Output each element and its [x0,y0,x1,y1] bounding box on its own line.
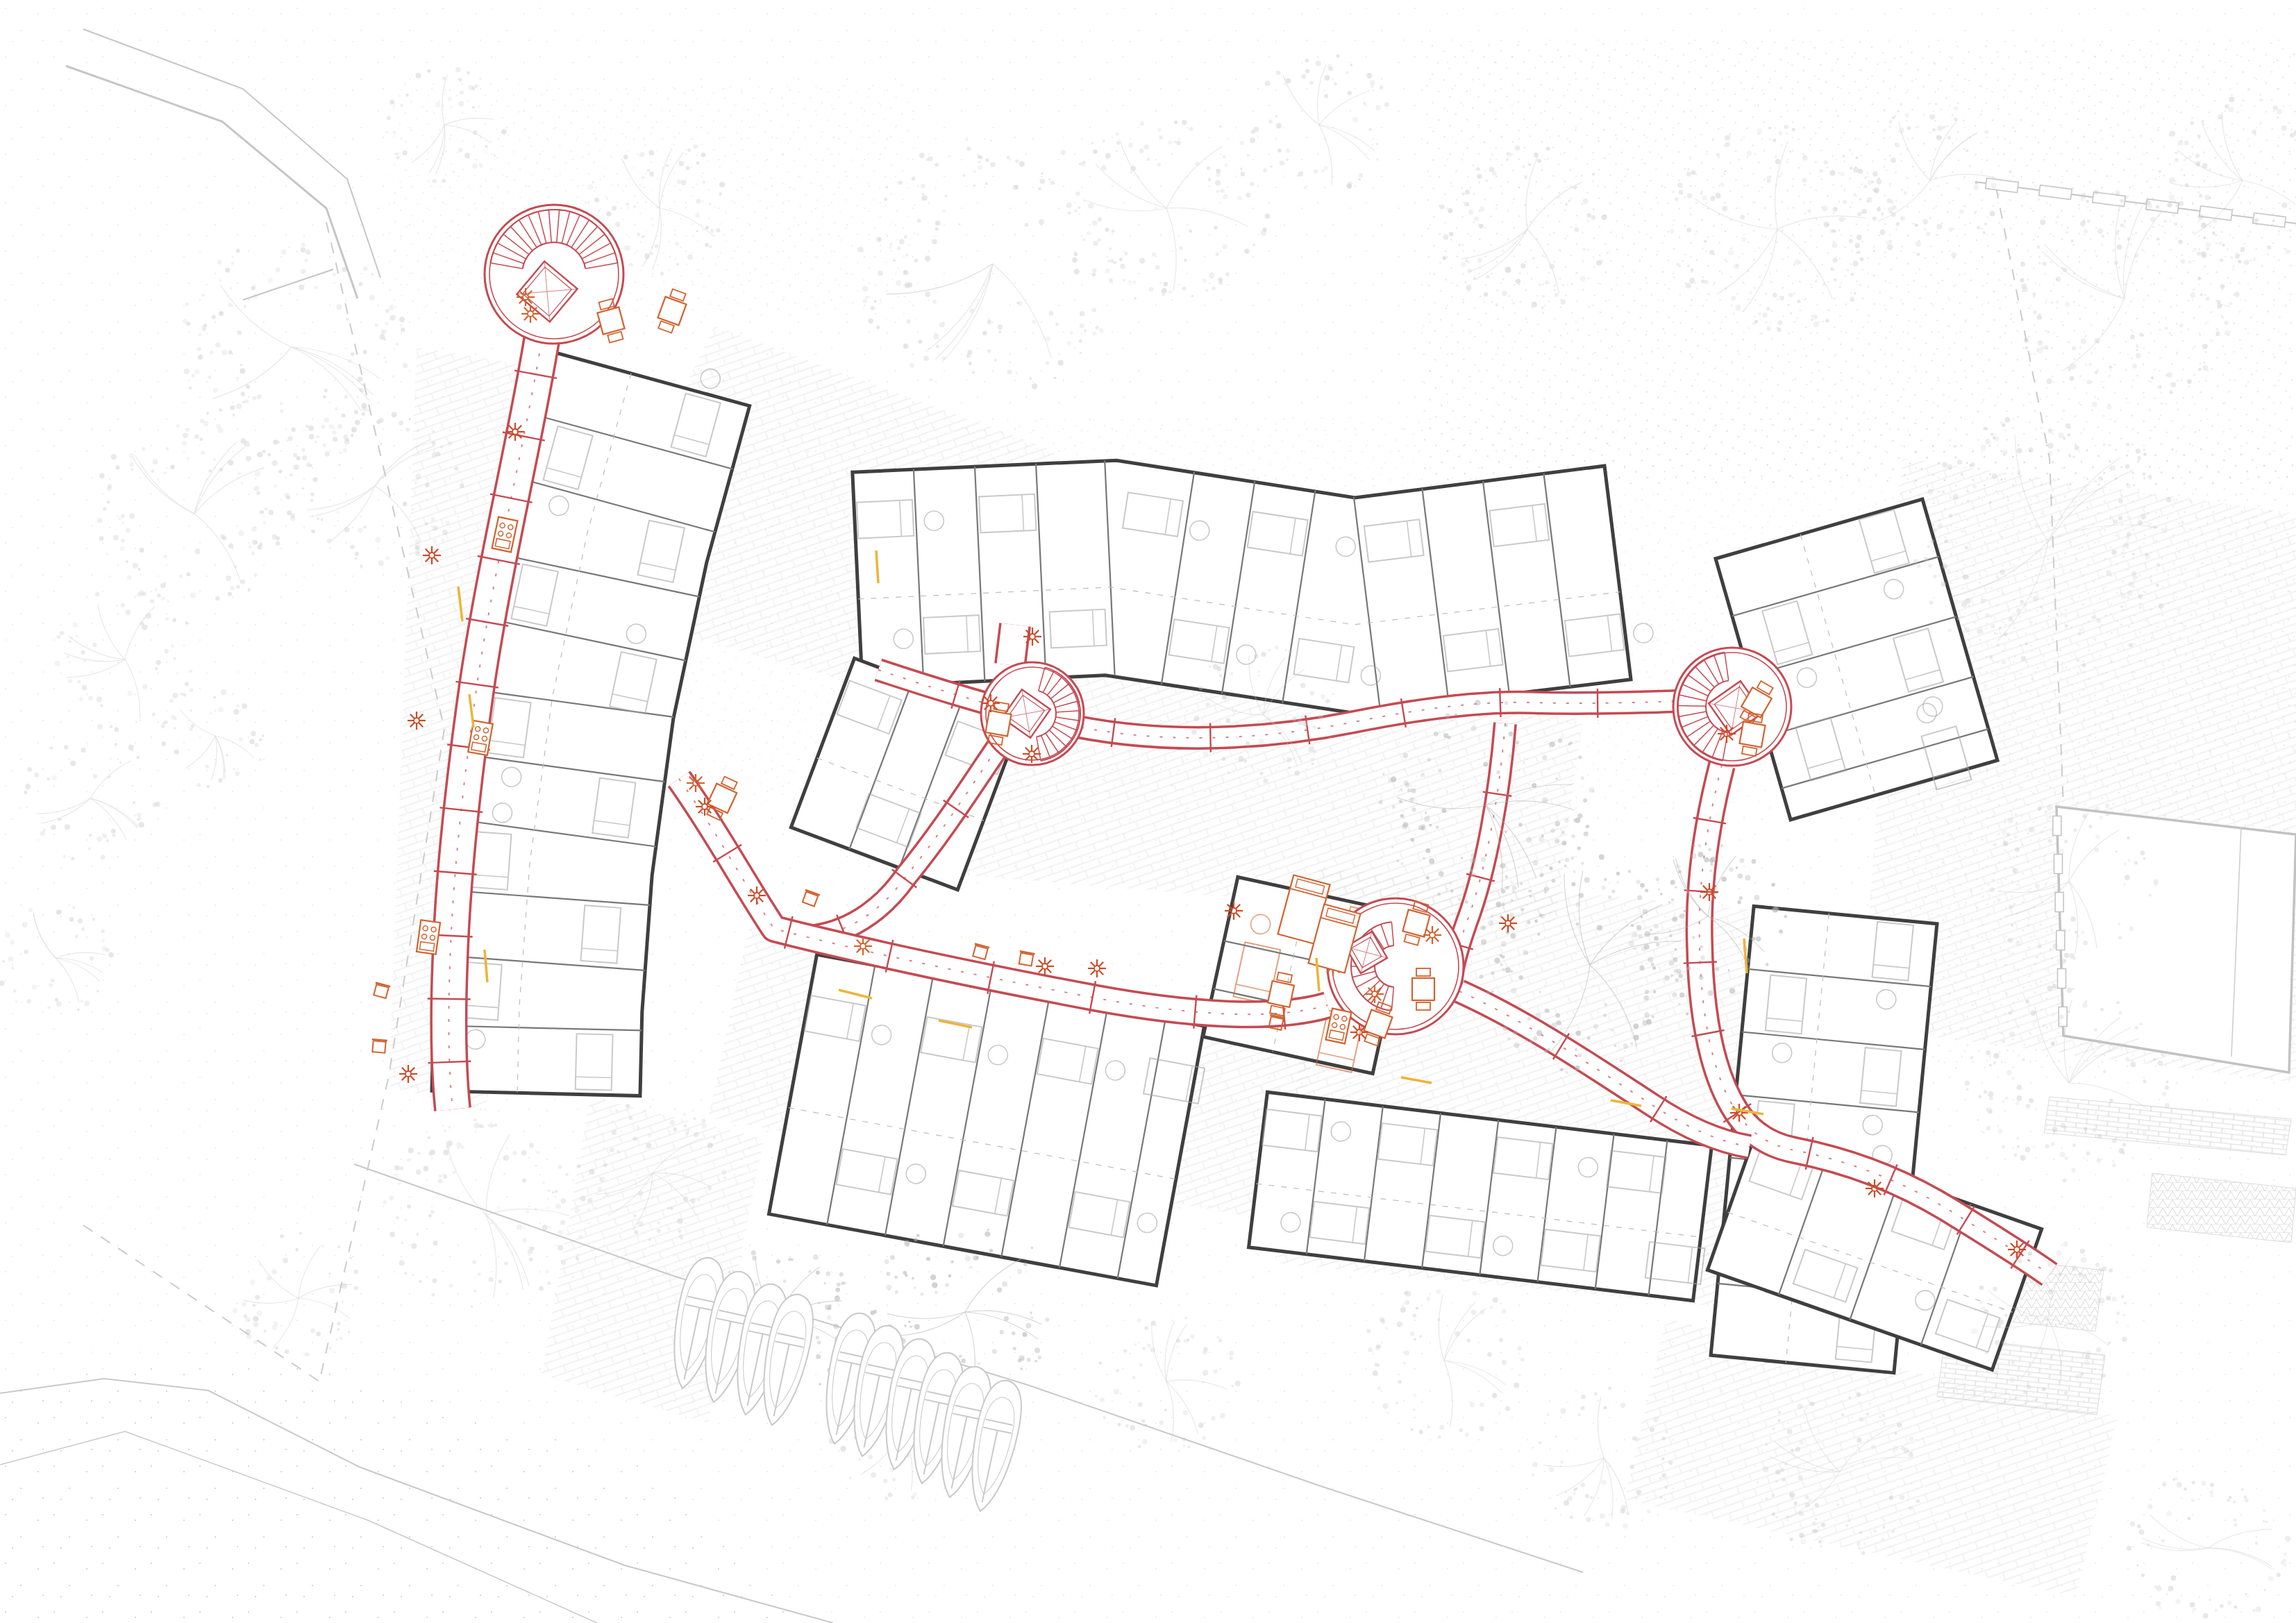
tree-leaf-dot [1473,1291,1477,1295]
tree-leaf-dot [1592,173,1595,176]
tree-leaf-dot [2073,828,2077,832]
tree-leaf-dot [385,361,387,363]
tree-leaf-dot [274,485,276,487]
tree-leaf-dot [1020,1368,1023,1370]
tree-leaf-dot [1668,1461,1673,1465]
tree-leaf-dot [1947,136,1951,140]
tree-leaf-dot [1184,1317,1187,1319]
tree-leaf-dot [1203,751,1209,757]
tree-leaf-dot [1749,292,1752,294]
tree-leaf-dot [423,1166,428,1171]
tree-leaf-dot [464,153,470,158]
building-central-slab [853,460,1654,713]
tree-leaf-dot [1550,828,1555,832]
tree-leaf-dot [2037,340,2043,346]
tree-leaf-dot [2212,231,2215,235]
tree-leaf-dot [2088,362,2092,366]
tree-leaf-dot [1899,128,1904,133]
tree-leaf-dot [2136,448,2140,453]
tree-leaf-dot [1123,1349,1127,1352]
tree-leaf-dot [1537,159,1541,163]
tree-leaf-dot [13,989,17,993]
tree-leaf-dot [1867,197,1872,203]
tree-leaf-dot [1571,834,1575,838]
tree-leaf-dot [1605,1522,1610,1527]
tree-leaf-dot [1734,263,1739,269]
tree-leaf-dot [210,351,213,354]
tree-leaf-dot [239,737,243,741]
tree-leaf-dot [2081,339,2086,344]
tree-leaf-dot [687,149,691,152]
tree-leaf-dot [2192,1481,2195,1484]
tree-leaf-dot [2274,106,2278,110]
tree-leaf-dot [677,179,682,184]
tree-leaf-dot [251,731,255,736]
tree-leaf-dot [1128,143,1133,148]
tree-leaf-dot [2020,262,2025,267]
tree-leaf-dot [1758,312,1761,316]
tree-leaf-dot [1366,1329,1371,1333]
tree-leaf-dot [332,430,336,435]
tree-leaf-dot [2063,928,2067,932]
tree-leaf-dot [2097,1300,2101,1304]
tree-leaf-dot [610,1147,614,1152]
tree-leaf-dot [1664,975,1670,981]
tree-leaf-dot [2238,260,2241,263]
tree-leaf-dot [114,743,117,746]
tree-leaf-dot [1532,257,1534,260]
tree-leaf-dot [1631,924,1634,927]
tree-leaf-dot [2056,276,2061,282]
tree-leaf-dot [135,721,138,724]
tree-leaf-dot [417,430,419,432]
tree-leaf-dot [276,537,280,541]
tree-leaf-dot [1400,814,1404,818]
tree-leaf-dot [2110,1099,2113,1102]
tree-leaf-dot [1528,890,1531,893]
tree-leaf-dot [110,725,113,728]
tree-leaf-dot [1620,1402,1625,1407]
tree-leaf-dot [2048,816,2052,819]
tree-leaf-dot [185,621,189,625]
tree-leaf-dot [1658,889,1660,891]
tree-leaf-dot [1000,1330,1004,1334]
tree-leaf-dot [1015,160,1019,163]
tree-leaf-dot [1254,654,1258,658]
tree-leaf-dot [1994,632,1997,635]
tree-leaf-dot [1544,1050,1548,1053]
tree-leaf-dot [1928,564,1932,568]
tree-leaf-dot [1660,893,1663,895]
tree-leaf-dot [1270,165,1273,168]
tree-leaf-dot [603,1163,607,1167]
tree-leaf-dot [1512,886,1517,891]
tree-leaf-dot [208,376,212,379]
tree-leaf-dot [598,210,601,212]
tree-leaf-dot [1084,330,1087,333]
tree-leaf-dot [473,131,477,135]
tree-leaf-dot [2259,99,2263,102]
tree-leaf-dot [190,670,192,673]
tree-leaf-dot [1821,1522,1825,1527]
tree-leaf-dot [2129,926,2134,930]
tree-leaf-dot [1993,1286,1997,1291]
tree-leaf-dot [904,235,907,239]
tree-leaf-dot [344,527,350,532]
tree-leaf-dot [2027,923,2030,927]
tree-leaf-dot [2285,249,2290,254]
tree-leaf-dot [966,353,971,358]
tree-leaf-dot [1489,167,1494,172]
tree-leaf-dot [1012,185,1017,190]
tree-leaf-dot [1184,259,1187,262]
tree-leaf-dot [1392,805,1396,809]
tree-leaf-dot [1720,183,1725,187]
tree-leaf-dot [474,1290,476,1293]
tree-leaf-dot [1098,1361,1102,1365]
tree-leaf-dot [587,1197,592,1202]
tree-leaf-dot [2206,296,2210,301]
neighbor-window [2055,893,2063,912]
tree-leaf-dot [1857,235,1862,240]
tree-leaf-dot [2095,807,2100,811]
tree-leaf-dot [172,693,178,698]
tree-leaf-dot [1775,1516,1778,1519]
tree-leaf-dot [2252,130,2256,134]
tree-leaf-dot [1465,1433,1469,1437]
tree-leaf-dot [1545,864,1548,867]
tree-leaf-dot [106,948,110,952]
tree-leaf-dot [1798,1511,1803,1515]
tree-leaf-dot [1652,1015,1654,1018]
tree-leaf-dot [1590,1496,1593,1499]
tree-leaf-dot [2067,988,2072,993]
tree-leaf-dot [396,343,399,346]
tree-leaf-dot [928,156,932,161]
tree-leaf-dot [2172,1478,2175,1481]
tree-leaf-dot [1457,897,1461,901]
tree-leaf-dot [2095,1111,2097,1113]
tree-leaf-dot [2070,364,2076,369]
tree-leaf-dot [2218,241,2222,244]
tree-leaf-dot [1725,170,1727,172]
tree-leaf-dot [1570,1515,1573,1519]
tree-leaf-dot [1991,878,1995,882]
tree-leaf-dot [2129,643,2133,647]
tree-leaf-dot [2056,958,2061,962]
tree-leaf-dot [2040,219,2045,225]
tree-leaf-dot [407,1158,410,1161]
tree-leaf-dot [1505,830,1507,833]
tree-leaf-dot [2017,1145,2020,1148]
tree-leaf-dot [246,385,250,389]
tree-leaf-dot [1294,771,1300,776]
tree-leaf-dot [125,609,131,615]
walkway-tick [428,998,471,999]
tree-leaf-dot [433,430,435,432]
tree-leaf-dot [267,453,271,457]
tree-leaf-dot [942,209,946,212]
tree-leaf-dot [1464,201,1469,206]
tree-leaf-dot [1904,191,1907,194]
tree-leaf-dot [2009,617,2013,621]
tree-leaf-dot [1585,1494,1589,1498]
tree-leaf-dot [1018,1359,1021,1362]
tree-leaf-dot [2020,278,2024,282]
tree-leaf-dot [305,250,310,255]
tree-leaf-dot [265,507,267,510]
tree-leaf-dot [1794,1502,1798,1505]
tree-leaf-dot [1400,1307,1406,1313]
tree-leaf-dot [101,929,105,933]
tree-leaf-dot [1871,180,1874,183]
tree-leaf-dot [2125,464,2129,469]
tree-leaf-dot [399,1260,405,1265]
tree-leaf-dot [1636,1490,1642,1495]
tree-leaf-dot [342,267,347,272]
tree-leaf-dot [157,594,160,597]
tree-leaf-dot [1455,714,1457,716]
tree-leaf-dot [1068,212,1071,215]
tree-leaf-dot [912,177,915,180]
tree-leaf-dot [1934,103,1937,106]
tree-leaf-dot [1155,265,1159,269]
tree-leaf-dot [430,1210,435,1214]
tree-leaf-dot [275,1346,279,1350]
tree-leaf-dot [1025,223,1029,227]
tree-leaf-dot [1091,273,1096,277]
tree-leaf-dot [885,185,888,188]
tree-leaf-dot [1686,228,1691,233]
tree-leaf-dot [1665,1486,1668,1489]
tree-leaf-dot [1644,1013,1649,1018]
tree-leaf-dot [1538,1440,1542,1445]
tree-leaf-dot [1029,378,1032,380]
tree-leaf-dot [935,162,939,167]
tree-leaf-dot [2159,1606,2161,1609]
tree-leaf-dot [2123,220,2126,223]
tree-leaf-dot [190,709,192,712]
tree-leaf-dot [1286,158,1289,161]
tree-leaf-dot [978,1362,980,1364]
tree-leaf-dot [1371,85,1374,88]
tree-leaf-dot [1811,319,1813,321]
tree-leaf-dot [10,940,15,945]
tree-leaf-dot [898,180,903,185]
tree-leaf-dot [2011,923,2014,927]
tree-leaf-dot [2135,1026,2138,1029]
tree-leaf-dot [1116,1369,1119,1372]
tree-leaf-dot [1861,1551,1865,1555]
tree-leaf-dot [399,1166,403,1170]
tree-leaf-dot [1214,226,1217,229]
tree-leaf-dot [1623,1043,1628,1048]
tree-leaf-dot [1931,539,1934,543]
tree-leaf-dot [1892,116,1895,119]
tree-leaf-dot [888,1492,893,1497]
tree-leaf-dot [2033,1145,2036,1148]
tree-leaf-dot [47,1006,50,1009]
tree-leaf-dot [2156,1586,2161,1592]
tree-leaf-dot [1756,936,1761,942]
tree-leaf-dot [2011,880,2013,883]
tree-leaf-dot [2094,848,2099,852]
tree-leaf-dot [1636,925,1641,930]
tree-leaf-dot [467,71,470,74]
tree-leaf-dot [2031,1011,2036,1016]
tree-leaf-dot [945,195,948,198]
tree-leaf-dot [1648,957,1653,962]
tree-leaf-dot [2068,929,2070,931]
tree-leaf-dot [1511,970,1513,973]
tree-leaf-dot [2143,857,2145,859]
tree-leaf-dot [1961,630,1964,633]
tree-leaf-dot [678,161,684,167]
tree-leaf-dot [1576,902,1581,907]
tree-leaf-dot [2178,239,2183,244]
tree-leaf-dot [1678,1003,1680,1005]
tree-leaf-dot [884,198,887,201]
tree-leaf-dot [2102,1373,2106,1377]
tree-leaf-dot [1012,1331,1015,1335]
tree-leaf-dot [2002,1040,2004,1043]
tree-leaf-dot [1832,229,1836,233]
tree-leaf-dot [932,1476,935,1479]
tree-leaf-dot [1840,172,1844,176]
tree-leaf-dot [1203,278,1207,283]
tree-leaf-dot [576,1256,579,1260]
tree-leaf-dot [97,696,102,702]
site-plan-drawing [0,0,2296,1623]
tree-leaf-dot [1675,978,1679,982]
tree-leaf-dot [1645,990,1649,994]
tree-leaf-dot [162,596,165,600]
tree-leaf-dot [1984,130,1988,134]
tree-leaf-dot [241,392,245,396]
tree-leaf-dot [1537,933,1540,936]
tree-leaf-dot [1427,1425,1430,1428]
tree-leaf-dot [51,979,55,983]
tree-leaf-dot [478,1272,481,1276]
tree-leaf-dot [1555,821,1560,827]
tree-leaf-dot [1542,798,1548,803]
tree-leaf-dot [1468,269,1472,273]
tree-leaf-dot [1686,171,1691,176]
tree-leaf-dot [962,174,965,177]
tree-leaf-dot [1562,284,1566,287]
tree-leaf-dot [361,403,367,408]
tree-leaf-dot [63,855,66,858]
tree-leaf-dot [615,254,619,258]
tree-leaf-dot [1168,290,1172,294]
tree-leaf-dot [2047,330,2049,333]
tree-leaf-dot [191,724,195,728]
tree-leaf-dot [1601,1480,1606,1485]
tree-leaf-dot [1141,1419,1146,1423]
tree-leaf-dot [246,455,251,461]
tree-leaf-dot [2047,443,2053,448]
tree-leaf-dot [1591,215,1596,220]
tree-leaf-dot [1305,69,1309,73]
tree-leaf-dot [709,203,712,205]
tree-leaf-dot [1957,460,1963,465]
tree-leaf-dot [2116,1001,2119,1004]
tree-leaf-dot [494,1124,497,1127]
tree-leaf-dot [453,1171,455,1174]
tree-leaf-dot [1998,1051,2000,1053]
tree-leaf-dot [262,734,265,737]
tree-leaf-dot [351,352,355,356]
tree-leaf-dot [460,91,464,95]
tree-leaf-dot [597,225,601,229]
tree-leaf-dot [2202,119,2204,122]
tree-leaf-dot [1495,902,1501,907]
tree-leaf-dot [1268,649,1270,651]
tree-leaf-dot [1974,1308,1977,1311]
tree-leaf-dot [389,1231,395,1237]
tree-leaf-dot [385,131,388,134]
tree-leaf-dot [165,617,169,621]
tree-leaf-dot [961,1359,966,1363]
tree-leaf-dot [1802,153,1804,155]
tree-leaf-dot [1464,281,1466,283]
tree-leaf-dot [1223,696,1227,700]
tree-leaf-dot [107,501,110,503]
tree-leaf-dot [444,1129,447,1133]
tree-leaf-dot [2136,1564,2139,1567]
tree-leaf-dot [2202,365,2208,371]
tree-leaf-dot [2095,338,2100,344]
tree-leaf-dot [99,536,103,541]
tree-leaf-dot [945,1283,949,1287]
tree-leaf-dot [440,446,443,448]
tree-leaf-dot [82,685,87,691]
tree-leaf-dot [1977,629,1982,634]
tree-leaf-dot [414,545,420,550]
tree-leaf-dot [1709,869,1712,872]
tree-leaf-dot [442,530,448,535]
tree-leaf-dot [306,462,311,467]
tree-leaf-dot [2095,1263,2100,1267]
tree-leaf-dot [340,1285,343,1288]
tree-leaf-dot [2205,242,2211,248]
tree-leaf-dot [1505,1406,1511,1411]
tree-leaf-dot [1328,67,1333,72]
tree-leaf-dot [337,424,342,429]
tree-leaf-dot [1581,1395,1586,1399]
tree-leaf-dot [1258,739,1264,744]
tree-leaf-dot [2174,222,2177,226]
tree-leaf-dot [2100,1008,2104,1011]
tree-leaf-dot [412,1274,414,1276]
tree-leaf-dot [305,425,309,428]
tree-leaf-dot [970,309,974,313]
tree-leaf-dot [1822,205,1827,211]
tree-leaf-dot [2224,104,2229,109]
tree-leaf-dot [2095,834,2100,839]
tree-leaf-dot [1462,193,1465,196]
tree-leaf-dot [1276,123,1282,128]
tree-leaf-dot [1312,725,1316,730]
tree-leaf-dot [1398,1380,1402,1384]
tree-leaf-dot [2088,1281,2092,1284]
tree-leaf-dot [914,1324,920,1329]
tree-leaf-dot [1916,564,1920,568]
tree-leaf-dot [1745,875,1750,880]
tree-leaf-dot [1174,121,1177,124]
tree-leaf-dot [1336,54,1339,58]
tree-leaf-dot [1873,1530,1877,1533]
